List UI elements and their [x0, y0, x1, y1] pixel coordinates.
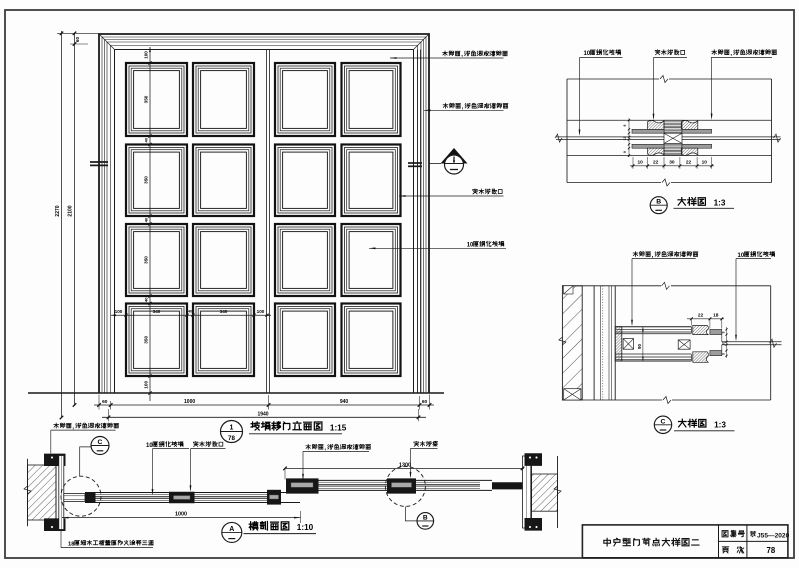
svg-text:60: 60	[75, 37, 80, 43]
svg-text:60: 60	[422, 399, 428, 405]
svg-text:J55—2020: J55—2020	[757, 532, 790, 539]
svg-text:100: 100	[143, 51, 148, 59]
svg-text:40: 40	[143, 137, 148, 142]
svg-text:350: 350	[143, 256, 148, 264]
svg-text:1000: 1000	[184, 399, 195, 405]
svg-text:B: B	[656, 199, 661, 206]
svg-text:78: 78	[228, 435, 235, 442]
svg-text:940: 940	[340, 399, 349, 405]
svg-text:22: 22	[698, 313, 704, 319]
svg-text:B: B	[423, 515, 428, 522]
svg-text:A: A	[229, 526, 234, 533]
svg-text:1: 1	[230, 425, 234, 432]
svg-text:350: 350	[143, 95, 148, 103]
svg-text:10: 10	[721, 342, 725, 346]
svg-text:10: 10	[702, 159, 708, 165]
svg-text:100: 100	[257, 309, 265, 314]
svg-text:350: 350	[143, 176, 148, 184]
svg-text:18: 18	[68, 541, 75, 547]
svg-text:1:10: 1:10	[297, 523, 314, 532]
svg-text:10: 10	[146, 443, 153, 449]
svg-text:1:3: 1:3	[714, 420, 726, 429]
svg-text:2100: 2100	[68, 205, 74, 216]
svg-text:9: 9	[721, 331, 725, 333]
svg-text:30: 30	[669, 159, 675, 165]
svg-text:1300: 1300	[399, 462, 411, 468]
svg-text:10: 10	[467, 243, 474, 249]
svg-text:13: 13	[623, 137, 627, 141]
svg-text:22: 22	[686, 159, 692, 165]
svg-text:2270: 2270	[55, 205, 61, 216]
svg-text:9: 9	[623, 124, 627, 126]
svg-text:1940: 1940	[257, 411, 268, 417]
svg-text:40: 40	[188, 310, 192, 314]
svg-text:100: 100	[143, 381, 148, 389]
svg-text:350: 350	[143, 336, 148, 344]
svg-text:1000: 1000	[175, 512, 187, 518]
svg-text:90: 90	[637, 344, 642, 349]
svg-text:1:15: 1:15	[330, 423, 347, 432]
svg-text:40: 40	[143, 217, 148, 222]
svg-text:40: 40	[143, 297, 148, 302]
svg-text:10: 10	[738, 253, 745, 259]
svg-text:9: 9	[721, 353, 725, 355]
svg-text:340: 340	[220, 309, 228, 314]
svg-text:18: 18	[713, 313, 719, 319]
svg-text:1:3: 1:3	[714, 199, 726, 208]
svg-text:22: 22	[653, 159, 659, 165]
svg-text:340: 340	[153, 309, 161, 314]
svg-text:C: C	[661, 418, 666, 425]
svg-text:78: 78	[767, 546, 776, 555]
svg-text:C: C	[98, 439, 103, 446]
svg-text:10: 10	[638, 159, 644, 165]
svg-text:100: 100	[115, 309, 123, 314]
svg-text:9: 9	[623, 151, 627, 153]
svg-text:60: 60	[102, 399, 108, 405]
svg-text:10: 10	[584, 51, 591, 57]
